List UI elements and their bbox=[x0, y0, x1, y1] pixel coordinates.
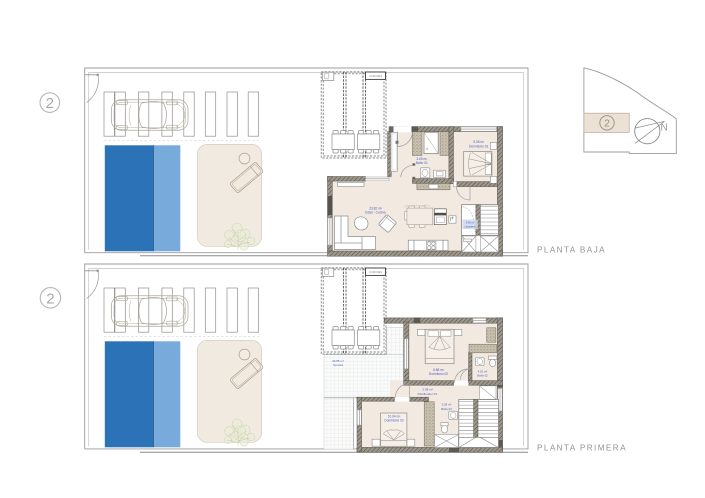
svg-text:2: 2 bbox=[46, 290, 54, 307]
svg-text:PLANTA BAJA: PLANTA BAJA bbox=[537, 246, 606, 255]
svg-text:PLANTA PRIMERA: PLANTA PRIMERA bbox=[537, 444, 627, 453]
svg-text:Distribuidor P1: Distribuidor P1 bbox=[418, 392, 438, 396]
svg-text:Dormitorio 02: Dormitorio 02 bbox=[429, 372, 448, 376]
svg-text:2: 2 bbox=[604, 118, 610, 129]
svg-text:Dormitorio 01: Dormitorio 01 bbox=[469, 144, 488, 148]
svg-text:COMUNES: COMUNES bbox=[369, 74, 383, 78]
svg-text:Baño 02: Baño 02 bbox=[477, 374, 488, 378]
svg-text:2: 2 bbox=[46, 95, 54, 112]
svg-text:3.06 m²: 3.06 m² bbox=[466, 220, 475, 224]
svg-text:Baño 01: Baño 01 bbox=[416, 161, 428, 165]
svg-text:N: N bbox=[661, 123, 668, 134]
svg-text:Lavadero: Lavadero bbox=[465, 225, 476, 229]
svg-text:COMUNES: COMUNES bbox=[369, 270, 383, 274]
svg-text:Estar - Cocina: Estar - Cocina bbox=[365, 211, 385, 215]
svg-text:Dormitorio 03: Dormitorio 03 bbox=[384, 419, 403, 423]
svg-text:Baño 03: Baño 03 bbox=[441, 407, 452, 411]
svg-text:Terraza: Terraza bbox=[333, 363, 343, 367]
